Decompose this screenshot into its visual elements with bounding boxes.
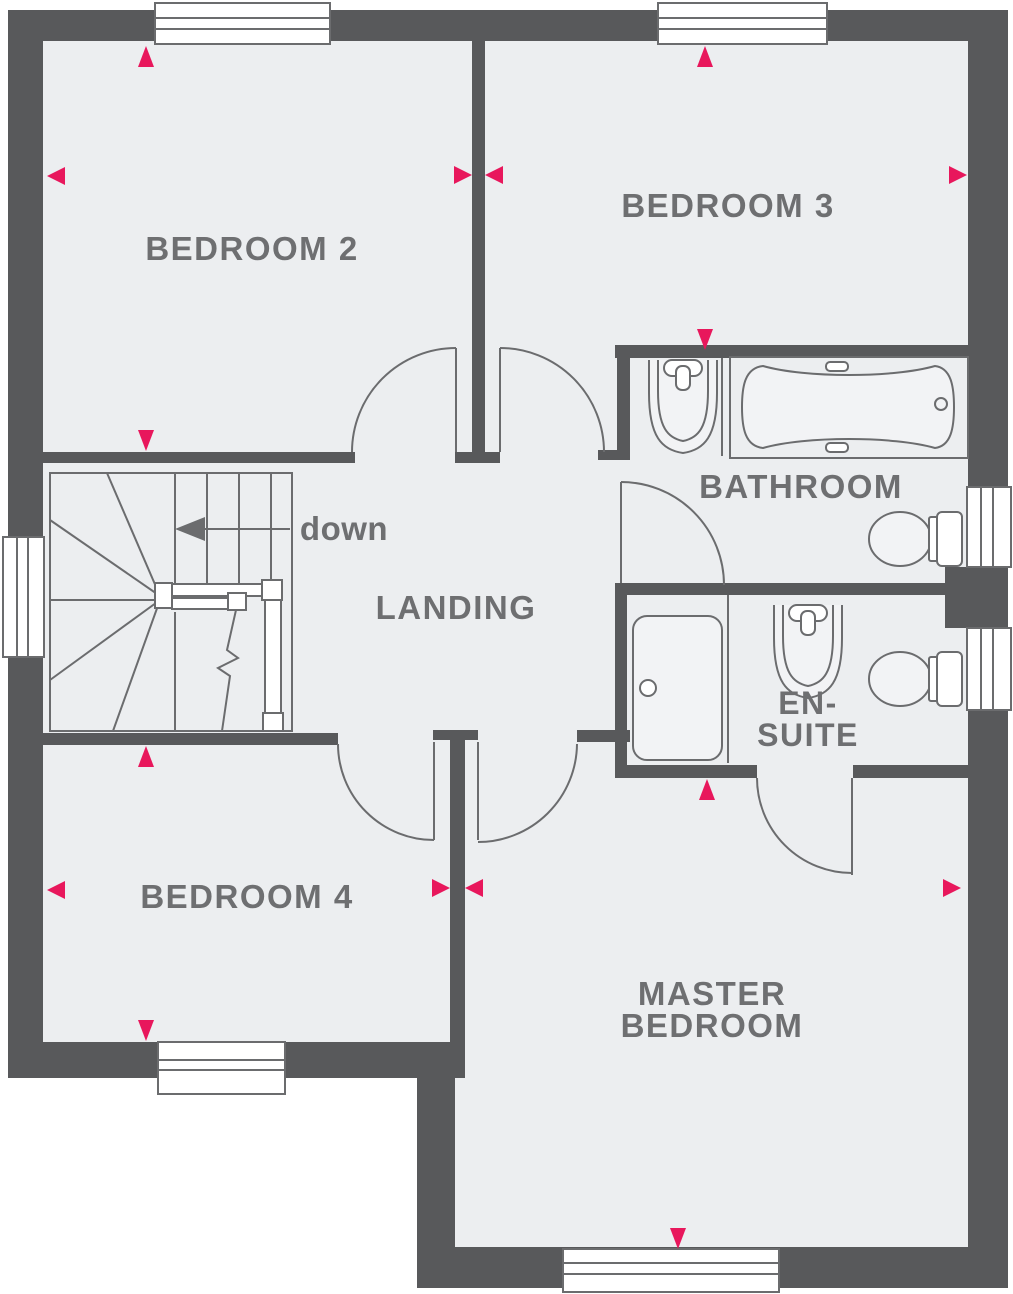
window-bedroom2 — [155, 3, 330, 44]
label-landing: LANDING — [376, 592, 537, 624]
window-stairs — [3, 537, 44, 657]
ensuite-toilet — [869, 652, 962, 706]
label-master-bedroom: MASTER BEDROOM — [621, 978, 804, 1042]
label-master-line2: BEDROOM — [621, 1010, 804, 1042]
bathroom-toilet — [869, 512, 962, 566]
wall-ensuite-west — [615, 585, 627, 778]
stair-newel — [155, 583, 172, 608]
stair-handrail — [172, 584, 272, 596]
window-ensuite — [967, 628, 1011, 710]
wall-landing-bed4 — [43, 733, 338, 745]
wall-bed4-master — [450, 740, 465, 1078]
wall-bed2-bed3 — [472, 41, 485, 455]
shower — [633, 595, 728, 763]
wall-bed2-landing — [43, 452, 355, 463]
floor-plan: BEDROOM 2 BEDROOM 3 BATHROOM LANDING dow… — [0, 0, 1013, 1294]
wall-bathroom-ensuite — [615, 583, 945, 595]
label-bathroom: BATHROOM — [699, 471, 903, 503]
window-master — [563, 1249, 779, 1292]
label-bedroom4: BEDROOM 4 — [140, 881, 353, 913]
wall-ensuite-master-left — [615, 765, 757, 778]
label-master-line1: MASTER — [621, 978, 804, 1010]
label-ensuite-line1: EN- — [757, 687, 859, 719]
label-ensuite-line2: SUITE — [757, 719, 859, 751]
label-stairs-down: down — [300, 513, 388, 545]
window-bathroom — [967, 487, 1011, 567]
label-bedroom3: BEDROOM 3 — [621, 190, 834, 222]
label-bedroom2: BEDROOM 2 — [145, 233, 358, 265]
window-bedroom4 — [158, 1042, 285, 1094]
floor-plan-drawing — [0, 0, 1013, 1294]
label-ensuite: EN- SUITE — [757, 687, 859, 751]
window-bedroom3 — [658, 3, 827, 44]
wall-ensuite-master-right — [853, 765, 968, 778]
